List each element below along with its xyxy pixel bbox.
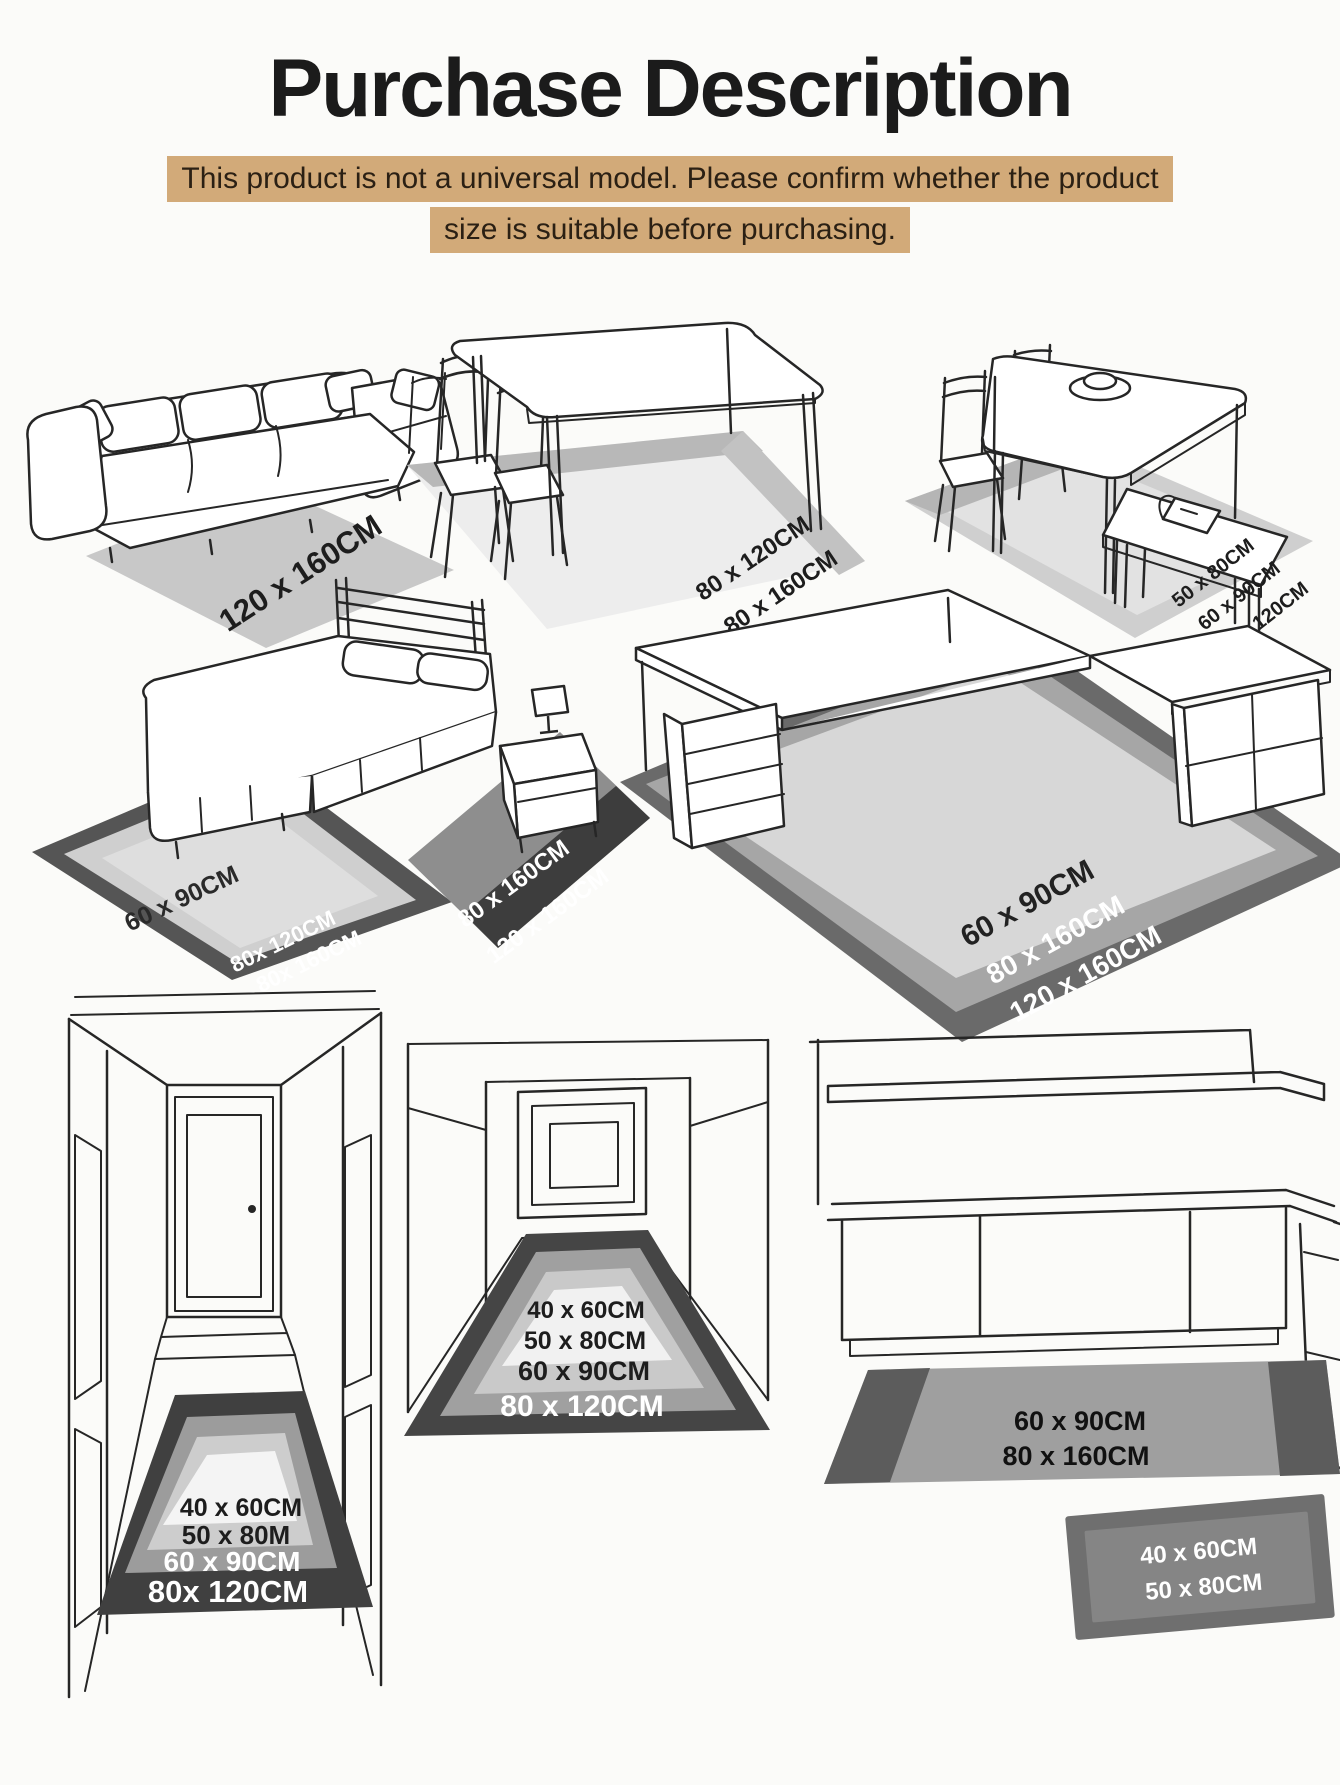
notice-line-1: This product is not a universal model. P… bbox=[167, 156, 1172, 202]
kitchen-door-mat: 40 x 60CM 50 x 80CM bbox=[1065, 1494, 1335, 1640]
scene-kitchen: 60 x 90CM 80 x 160CM 40 x 60CM 50 x 80CM bbox=[780, 1022, 1340, 1662]
rug-size-label: 60 x 90CM bbox=[164, 1546, 301, 1577]
notice-banner: This product is not a universal model. P… bbox=[0, 156, 1340, 258]
bed-illustration: 60 x 90CM 80x 120CM 80x 160CM 80 x 160CM… bbox=[20, 560, 660, 988]
page-title: Purchase Description bbox=[0, 42, 1340, 136]
rug-size-label: 60 x 90CM bbox=[1014, 1406, 1146, 1436]
rug-size-label: 40 x 60CM bbox=[527, 1297, 644, 1324]
purchase-description-page: Purchase Description This product is not… bbox=[0, 0, 1340, 1785]
scene-desk: 60 x 90CM 80 x 160CM 120 x 160CM bbox=[612, 582, 1340, 1042]
rug-size-label: 80x 120CM bbox=[148, 1574, 308, 1609]
door-knob bbox=[248, 1205, 256, 1213]
kitchen-illustration: 60 x 90CM 80 x 160CM 40 x 60CM 50 x 80CM bbox=[780, 1022, 1340, 1662]
scene-hallway: 40 x 60CM 50 x 80M 60 x 90CM 80x 120CM bbox=[55, 985, 395, 1735]
rug-size-label: 60 x 90CM bbox=[518, 1356, 650, 1386]
kitchen-runner-end-right bbox=[1268, 1360, 1340, 1476]
rug-size-label: 40 x 60CM bbox=[180, 1494, 302, 1522]
hallway-illustration: 40 x 60CM 50 x 80M 60 x 90CM 80x 120CM bbox=[55, 985, 395, 1735]
rug-size-label: 80 x 120CM bbox=[500, 1390, 663, 1423]
rug-size-label: 80 x 160CM bbox=[1002, 1441, 1149, 1471]
rug-size-label: 50 x 80CM bbox=[524, 1327, 646, 1355]
corridor-illustration: 40 x 60CM 50 x 80CM 60 x 90CM 80 x 120CM bbox=[398, 1038, 778, 1438]
scene-corridor: 40 x 60CM 50 x 80CM 60 x 90CM 80 x 120CM bbox=[398, 1038, 778, 1438]
desk-illustration: 60 x 90CM 80 x 160CM 120 x 160CM bbox=[612, 582, 1340, 1042]
notice-line-2: size is suitable before purchasing. bbox=[430, 207, 910, 253]
scene-bed: 60 x 90CM 80x 120CM 80x 160CM 80 x 160CM… bbox=[20, 560, 660, 988]
